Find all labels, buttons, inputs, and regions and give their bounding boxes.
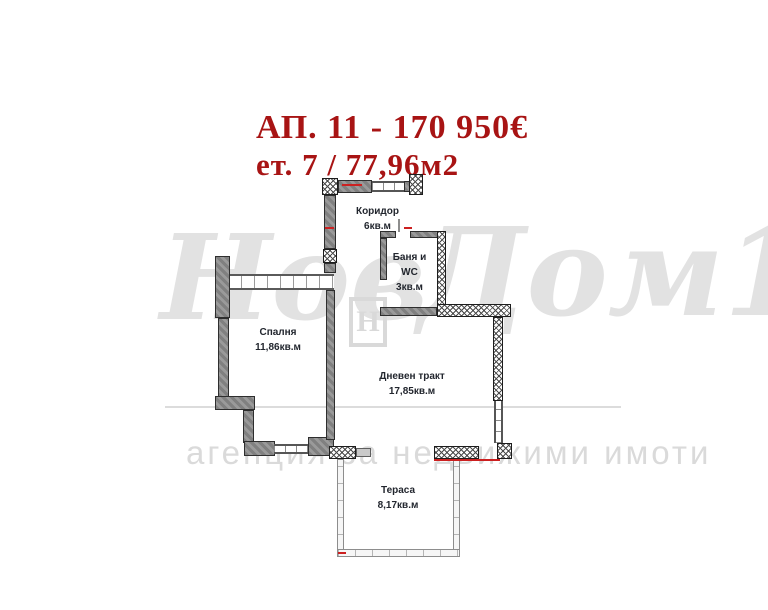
watermark-brand-script-right: Дом1: [418, 200, 768, 344]
wall-bedroom-bottom-left: [244, 441, 275, 456]
bathroom-name-line1: Баня и: [383, 250, 436, 265]
corridor-name: Коридор: [330, 204, 425, 219]
floorplan-flyer: Нов Дом1 агенция за недвижими имоти Н АП…: [0, 0, 768, 610]
agency-logo-icon: Н: [349, 297, 387, 347]
terrace-door-right-block: [434, 446, 479, 459]
listing-price-line: АП. 11 - 170 950€: [256, 108, 528, 147]
room-label-corridor: Коридор 6кв.м: [330, 204, 425, 234]
window-corridor-top: [372, 181, 404, 192]
terrace-name: Тераса: [348, 483, 448, 498]
dimension-mark-terrace-bottom: [338, 552, 346, 554]
wall-bedroom-left-upper: [215, 256, 230, 318]
wall-bathroom-bottom: [380, 307, 437, 316]
terrace-railing-right: [453, 459, 460, 553]
living-room-area: 17,85кв.м: [352, 384, 472, 399]
wall-living-right-upper: [493, 317, 503, 401]
terrace-door-sill: [356, 448, 371, 457]
bathroom-name-line2: WC: [383, 265, 436, 280]
terrace-railing-bottom: [337, 549, 460, 557]
terrace-railing-left: [337, 459, 344, 553]
terrace-door-left-block: [329, 446, 356, 459]
room-label-bathroom: Баня и WC 3кв.м: [383, 250, 436, 295]
wall-bedroom-step: [215, 396, 255, 410]
wall-bedroom-left-lower: [243, 410, 254, 443]
window-living-right: [494, 401, 503, 443]
bedroom-name: Спалня: [228, 325, 328, 340]
wall-bathroom-right: [437, 231, 446, 311]
bedroom-top-window-band: [215, 274, 334, 290]
wall-column-corridor-left: [323, 249, 337, 263]
listing-floor-area-line: ет. 7 / 77,96м2: [256, 147, 528, 183]
bathroom-area: 3кв.м: [383, 280, 436, 295]
room-label-bedroom: Спалня 11,86кв.м: [228, 325, 328, 355]
room-label-terrace: Тераса 8,17кв.м: [348, 483, 448, 513]
wall-column-living-bottom-right: [497, 443, 512, 459]
bedroom-area: 11,86кв.м: [228, 340, 328, 355]
corridor-area: 6кв.м: [330, 219, 425, 234]
window-bedroom-bottom: [274, 444, 309, 454]
wall-column-top-left: [322, 178, 338, 195]
living-room-name: Дневен тракт: [352, 369, 472, 384]
terrace-area: 8,17кв.м: [348, 498, 448, 513]
wall-corridor-left-lower: [324, 263, 336, 273]
wall-column-top-right: [409, 174, 423, 195]
dimension-mark-bottom-right: [434, 459, 500, 461]
wall-bedroom-living-divider: [326, 290, 335, 440]
wall-living-top-right: [437, 304, 511, 317]
dimension-mark-top: [342, 184, 362, 186]
listing-title: АП. 11 - 170 950€ ет. 7 / 77,96м2: [256, 108, 528, 183]
room-label-living-room: Дневен тракт 17,85кв.м: [352, 369, 472, 399]
wall-corridor-top-left: [338, 180, 372, 193]
